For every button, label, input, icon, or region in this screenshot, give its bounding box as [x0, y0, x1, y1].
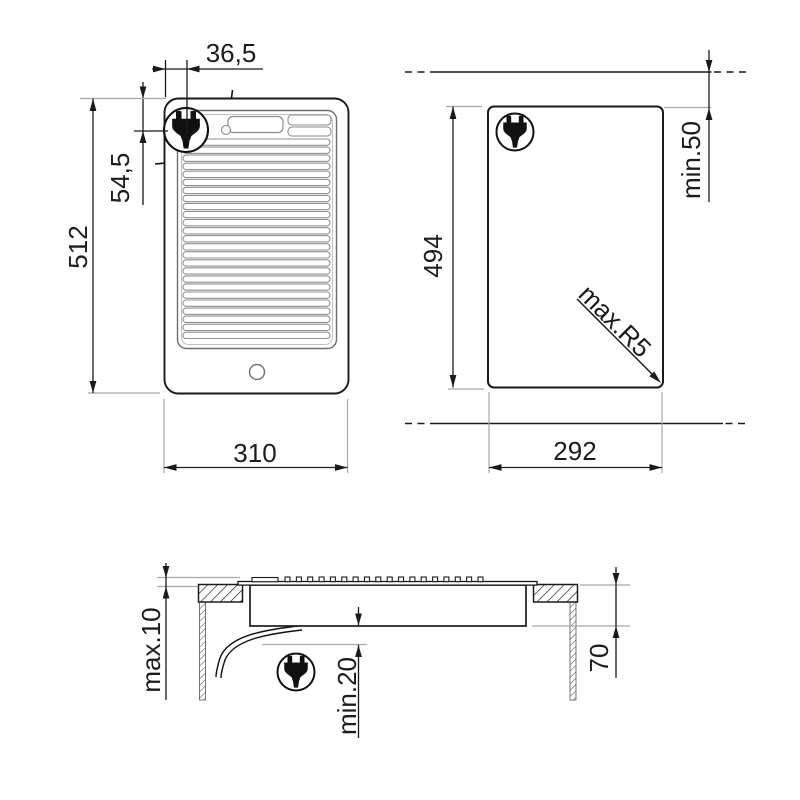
- technical-drawing: 36,5 54,5 512 310 494 min.50 max.R5 292 …: [0, 0, 800, 800]
- grill-slats: [183, 139, 330, 339]
- label-front-width: 310: [233, 440, 276, 466]
- igniter-dot: [222, 126, 231, 135]
- cabinet-side-right: [570, 602, 576, 700]
- label-cutout-height: 494: [420, 234, 446, 277]
- section-view: [157, 563, 630, 738]
- label-cutout-width: 292: [553, 438, 596, 464]
- appliance-section: [238, 577, 537, 626]
- dim-above-counter: [157, 563, 240, 700]
- dim-plug-top-offset: [134, 82, 168, 205]
- cutout-view: [405, 50, 747, 473]
- dim-recess-depth: [532, 567, 630, 678]
- control-knob: [250, 365, 265, 380]
- label-plug-side-offset: 36,5: [206, 40, 257, 66]
- label-front-height: 512: [65, 225, 91, 268]
- cabinet-side-left: [200, 602, 206, 700]
- dim-cutout-height: [446, 107, 484, 390]
- label-plug-top-offset: 54,5: [107, 153, 133, 204]
- display-window: [228, 117, 283, 133]
- front-view: [80, 60, 349, 473]
- label-rear-clearance: min.50: [678, 121, 704, 199]
- worktop-section-right: [534, 585, 578, 603]
- label-recess-depth: 70: [586, 644, 612, 673]
- power-plug-icon: [497, 114, 534, 151]
- power-plug-icon: [278, 654, 315, 691]
- label-above-counter: max.10: [138, 607, 164, 692]
- label-cable-clearance: min.20: [334, 657, 360, 735]
- power-plug-icon: [164, 108, 208, 152]
- worktop-section-left: [199, 585, 243, 603]
